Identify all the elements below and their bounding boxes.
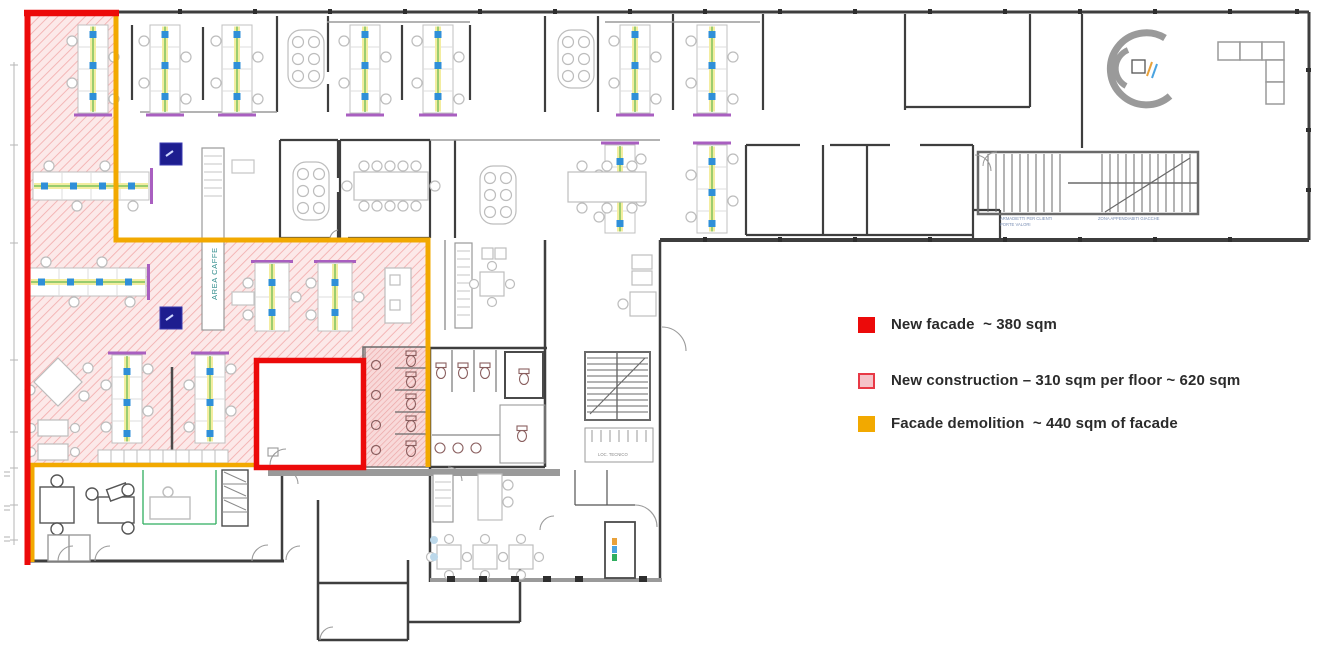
corner-desk — [385, 268, 411, 323]
meeting-table — [293, 162, 329, 220]
meeting-table — [568, 161, 646, 213]
legend-swatch-new-construction — [858, 373, 875, 389]
stairs-secondary — [585, 352, 653, 462]
desk-cluster — [609, 25, 661, 117]
meeting-table — [288, 30, 324, 88]
lockers-label-2: PORTE VALORI — [1000, 222, 1031, 227]
conference-table — [342, 161, 440, 211]
desk-cluster — [686, 25, 738, 117]
locker-row — [98, 450, 228, 463]
stairs — [978, 152, 1198, 214]
legend-label-facade-demolition: Facade demolition ~ 440 sqm of facade — [891, 415, 1178, 432]
desk-cluster — [139, 25, 191, 117]
bathroom-fixtures — [432, 350, 545, 463]
area-caffe-label: AREA CAFFE — [210, 247, 219, 300]
small-table — [470, 262, 515, 307]
reception-desk — [1110, 33, 1170, 105]
sofa — [1218, 42, 1284, 104]
coats-label: ZONA APPENDIABITI GIACCHE — [1098, 216, 1160, 221]
desk-cluster — [412, 25, 464, 117]
meeting-table — [558, 30, 594, 88]
meeting-table — [480, 166, 516, 224]
legend-item-new-facade: New facade ~ 380 sqm — [858, 316, 1057, 333]
legend-swatch-facade-demolition — [858, 416, 875, 432]
bottom-left-office — [40, 470, 248, 561]
desk-cluster — [339, 25, 391, 117]
legend-label-new-facade: New facade ~ 380 sqm — [891, 316, 1057, 333]
void-cutout — [257, 361, 364, 468]
legend-item-new-construction: New construction – 310 sqm per floor ~ 6… — [858, 372, 1240, 389]
dimension-lines — [4, 62, 18, 545]
lockers-label-1: ARMADIETTI PER CLIENTI — [1000, 216, 1052, 221]
break-area — [427, 470, 648, 582]
legend-label-new-construction: New construction – 310 sqm per floor ~ 6… — [891, 372, 1240, 389]
legend-swatch-new-facade — [858, 317, 875, 333]
legend-item-facade-demolition: Facade demolition ~ 440 sqm of facade — [858, 415, 1178, 432]
desk-cluster — [211, 25, 263, 117]
tech-room-label: LOC. TECNICO — [598, 452, 628, 457]
desk-cluster — [686, 142, 738, 234]
floor-plan: AREA CAFFE ARMADIETTI PER CLIENTI PORTE … — [0, 0, 1342, 672]
